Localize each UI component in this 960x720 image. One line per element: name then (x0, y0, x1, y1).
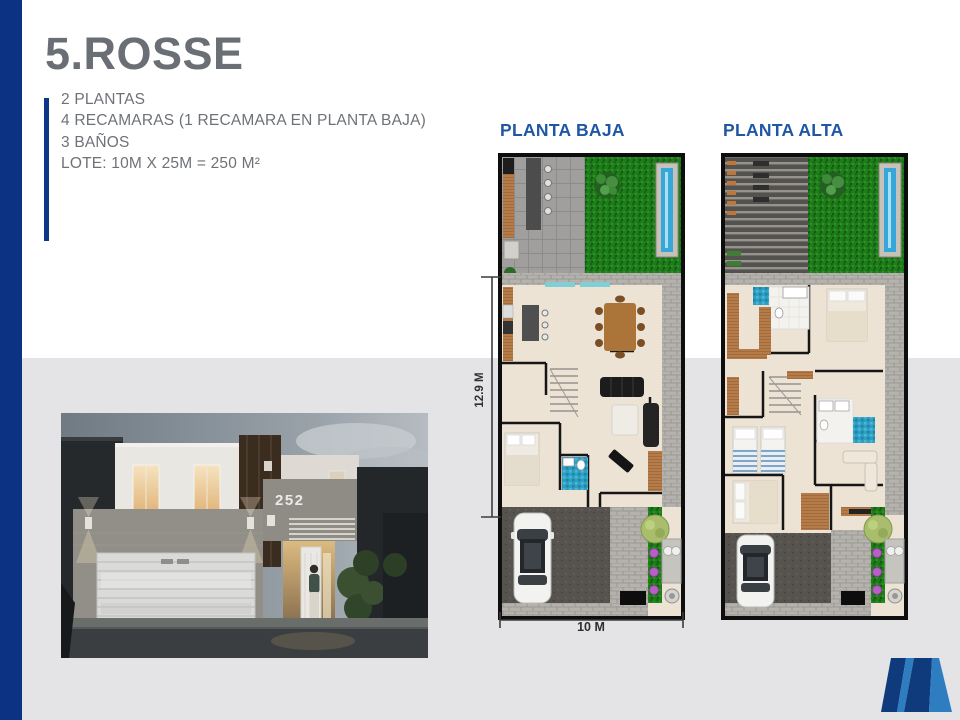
alta-interior (725, 285, 885, 530)
baja-interior (502, 282, 662, 507)
m-brand-logo-icon (873, 657, 955, 713)
page-title: 5.ROSSE (45, 28, 244, 80)
planta-baja-plan (500, 155, 683, 618)
alta-pool (879, 163, 901, 257)
baja-tree (594, 172, 620, 198)
garage-door (97, 553, 255, 625)
spec-line-banos: 3 BAÑOS (61, 132, 426, 153)
alta-car (737, 535, 774, 607)
alta-tree (820, 172, 846, 198)
spec-line-plantas: 2 PLANTAS (61, 89, 426, 110)
house-number: 252 (275, 492, 305, 509)
presentation-slide: 5.ROSSE 2 PLANTAS 4 RECAMARAS (1 RECAMAR… (0, 0, 960, 720)
house-photo: 252 (61, 413, 428, 658)
spec-line-recamaras: 4 RECAMARAS (1 RECAMARA EN PLANTA BAJA) (61, 110, 426, 131)
floorplans-graphic (480, 115, 920, 660)
baja-backyard (502, 157, 681, 283)
baja-driveway (502, 507, 681, 616)
street (61, 627, 428, 658)
slide-left-edge-bar (0, 0, 22, 720)
baja-car (511, 513, 554, 603)
planta-alta-plan (723, 155, 906, 618)
baja-pool (656, 163, 678, 257)
spec-line-lote: LOTE: 10M X 25M = 250 M² (61, 153, 426, 174)
specs-accent-bar (44, 98, 49, 241)
entry-upper-wall (263, 479, 357, 541)
dimension-width-label: 10 M (560, 620, 622, 634)
specs-list: 2 PLANTAS 4 RECAMARAS (1 RECAMARA EN PLA… (61, 89, 426, 174)
dimension-depth-label: 12.9 M (474, 357, 488, 423)
alta-roof-and-yard (725, 157, 904, 273)
